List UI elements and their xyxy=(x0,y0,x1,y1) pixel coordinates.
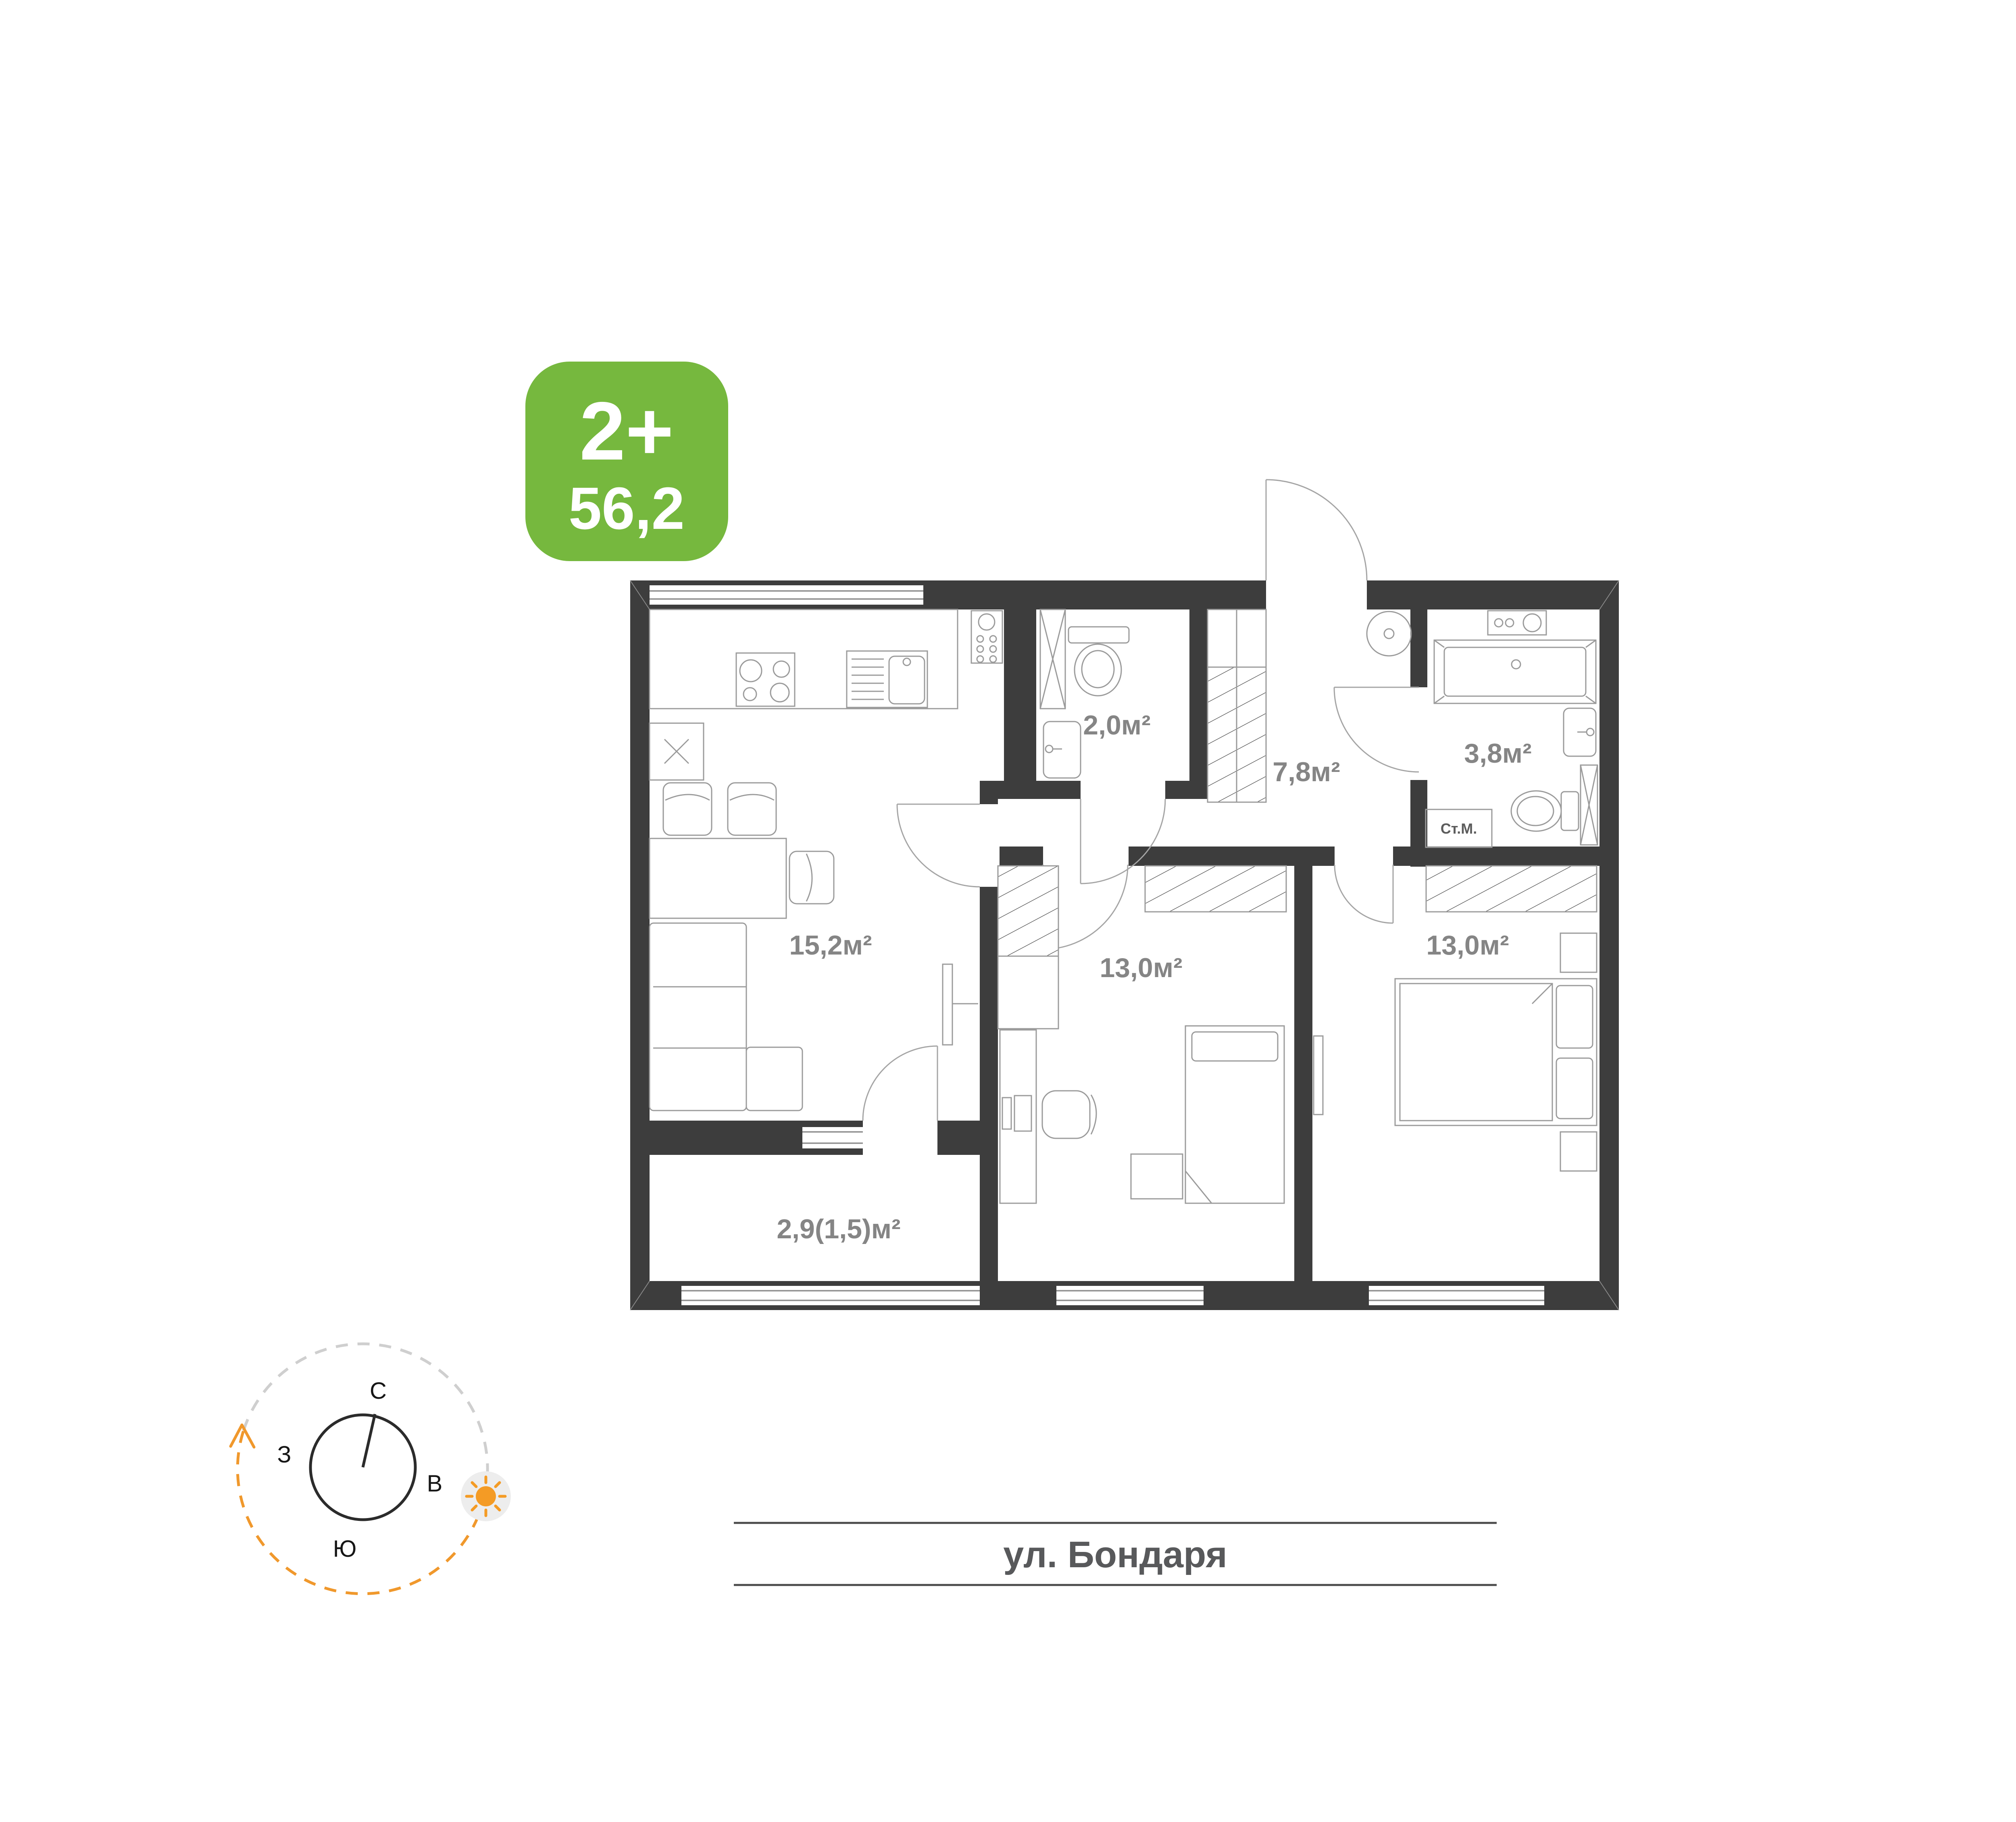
tv-icon xyxy=(1314,1036,1323,1115)
stove-icon xyxy=(736,653,795,706)
room-label-hallway: 7,8м² xyxy=(1272,757,1340,787)
washbasin-icon xyxy=(1043,722,1081,778)
kitchen-counter xyxy=(650,609,958,709)
room-label-balcony: 2,9(1,5)м² xyxy=(777,1214,900,1244)
bedroom-center-furniture xyxy=(998,866,1323,1203)
wardrobe-hatched xyxy=(1426,866,1597,912)
windows xyxy=(650,591,1544,1300)
dining-table xyxy=(650,783,834,918)
vanity-sink-icon xyxy=(1564,708,1596,756)
nightstand xyxy=(1560,933,1597,972)
single-bed xyxy=(1185,1026,1284,1203)
meter-box-icon xyxy=(971,611,1002,663)
bathtub-icon xyxy=(1434,640,1596,703)
tv-icon xyxy=(943,964,978,1045)
compass-west-label: З xyxy=(277,1441,291,1468)
bathroom-door xyxy=(1334,687,1419,772)
room-label-bedroom-right: 13,0м² xyxy=(1426,930,1509,961)
room-label-toilet: 2,0м² xyxy=(1083,710,1150,740)
entrance-door xyxy=(1266,480,1367,580)
closet-hatched xyxy=(998,866,1058,956)
badge-rooms-count: 2+ xyxy=(579,385,674,477)
toilet-icon xyxy=(1068,627,1129,696)
fridge-icon xyxy=(650,723,704,780)
room-label-bedroom-center: 13,0м² xyxy=(1100,953,1182,983)
washing-machine-niche: Ст.М. xyxy=(1426,809,1492,847)
nightstand xyxy=(1560,1132,1597,1171)
wardrobe-hatched xyxy=(1145,866,1286,912)
corner-sofa xyxy=(650,923,802,1111)
double-bed xyxy=(1395,979,1597,1125)
compass-east-label: В xyxy=(427,1470,443,1497)
badge-total-area: 56,2 xyxy=(569,475,685,542)
room-label-bathroom: 3,8м² xyxy=(1464,738,1531,769)
toilet-icon xyxy=(1511,791,1579,831)
room-label-kitchen-living: 15,2м² xyxy=(789,930,872,961)
vent-shaft-icon xyxy=(1581,765,1597,845)
floor-plan: Ст.М. xyxy=(630,480,1619,1310)
compass-north-label: С xyxy=(370,1378,387,1404)
sun-icon xyxy=(461,1471,511,1521)
toilet-furniture xyxy=(1040,609,1129,778)
street-bottom: ул. Бондаря xyxy=(734,1523,1497,1585)
cabinet xyxy=(998,956,1058,1029)
balcony-door xyxy=(863,1046,937,1121)
bedroom-right-door xyxy=(1335,865,1393,923)
compass-rose: С В Ю З xyxy=(231,1344,511,1594)
desk-with-computer xyxy=(1000,1030,1036,1203)
apartment-badge: 2+ 56,2 xyxy=(525,362,728,561)
boiler-icon xyxy=(1488,611,1546,635)
kitchen-sink-icon xyxy=(847,651,927,707)
desk-chair xyxy=(1042,1091,1096,1138)
ceiling-fan-icon xyxy=(1367,611,1411,656)
street-bottom-label: ул. Бондаря xyxy=(1003,1534,1227,1575)
washing-machine-label: Ст.М. xyxy=(1441,820,1477,837)
compass-south-label: Ю xyxy=(333,1536,357,1562)
bedroom-right-furniture xyxy=(1395,866,1597,1171)
hall-closet xyxy=(1208,609,1266,802)
kitchen-door xyxy=(897,804,980,887)
page-canvas: 2+ 56,2 xyxy=(0,0,2016,1822)
nightstand xyxy=(1131,1154,1183,1199)
bathroom-furniture: Ст.М. xyxy=(1426,611,1597,847)
vent-shaft-icon xyxy=(1040,609,1065,709)
kitchen-living-furniture xyxy=(650,609,1002,1111)
